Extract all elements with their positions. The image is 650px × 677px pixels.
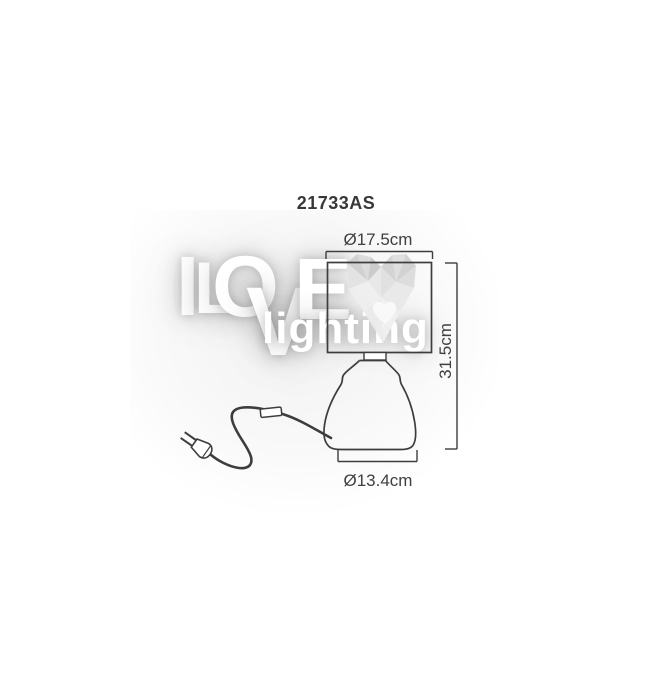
product-code: 21733AS xyxy=(266,193,406,214)
inline-switch xyxy=(260,407,282,418)
lamp-socket xyxy=(364,353,386,361)
shade-diameter-label: Ø17.5cm xyxy=(308,230,448,250)
dimension-line-base xyxy=(338,450,417,462)
product-dimension-diagram: I L O V E lighting xyxy=(0,0,650,677)
base-diameter-label: Ø13.4cm xyxy=(308,471,448,491)
watermark-heart xyxy=(347,254,416,343)
dimension-line-top xyxy=(326,252,433,260)
power-plug xyxy=(178,429,215,461)
lamp-base xyxy=(324,361,416,450)
lamp-technical-drawing xyxy=(0,0,650,677)
height-label: 31.5cm xyxy=(436,311,456,391)
